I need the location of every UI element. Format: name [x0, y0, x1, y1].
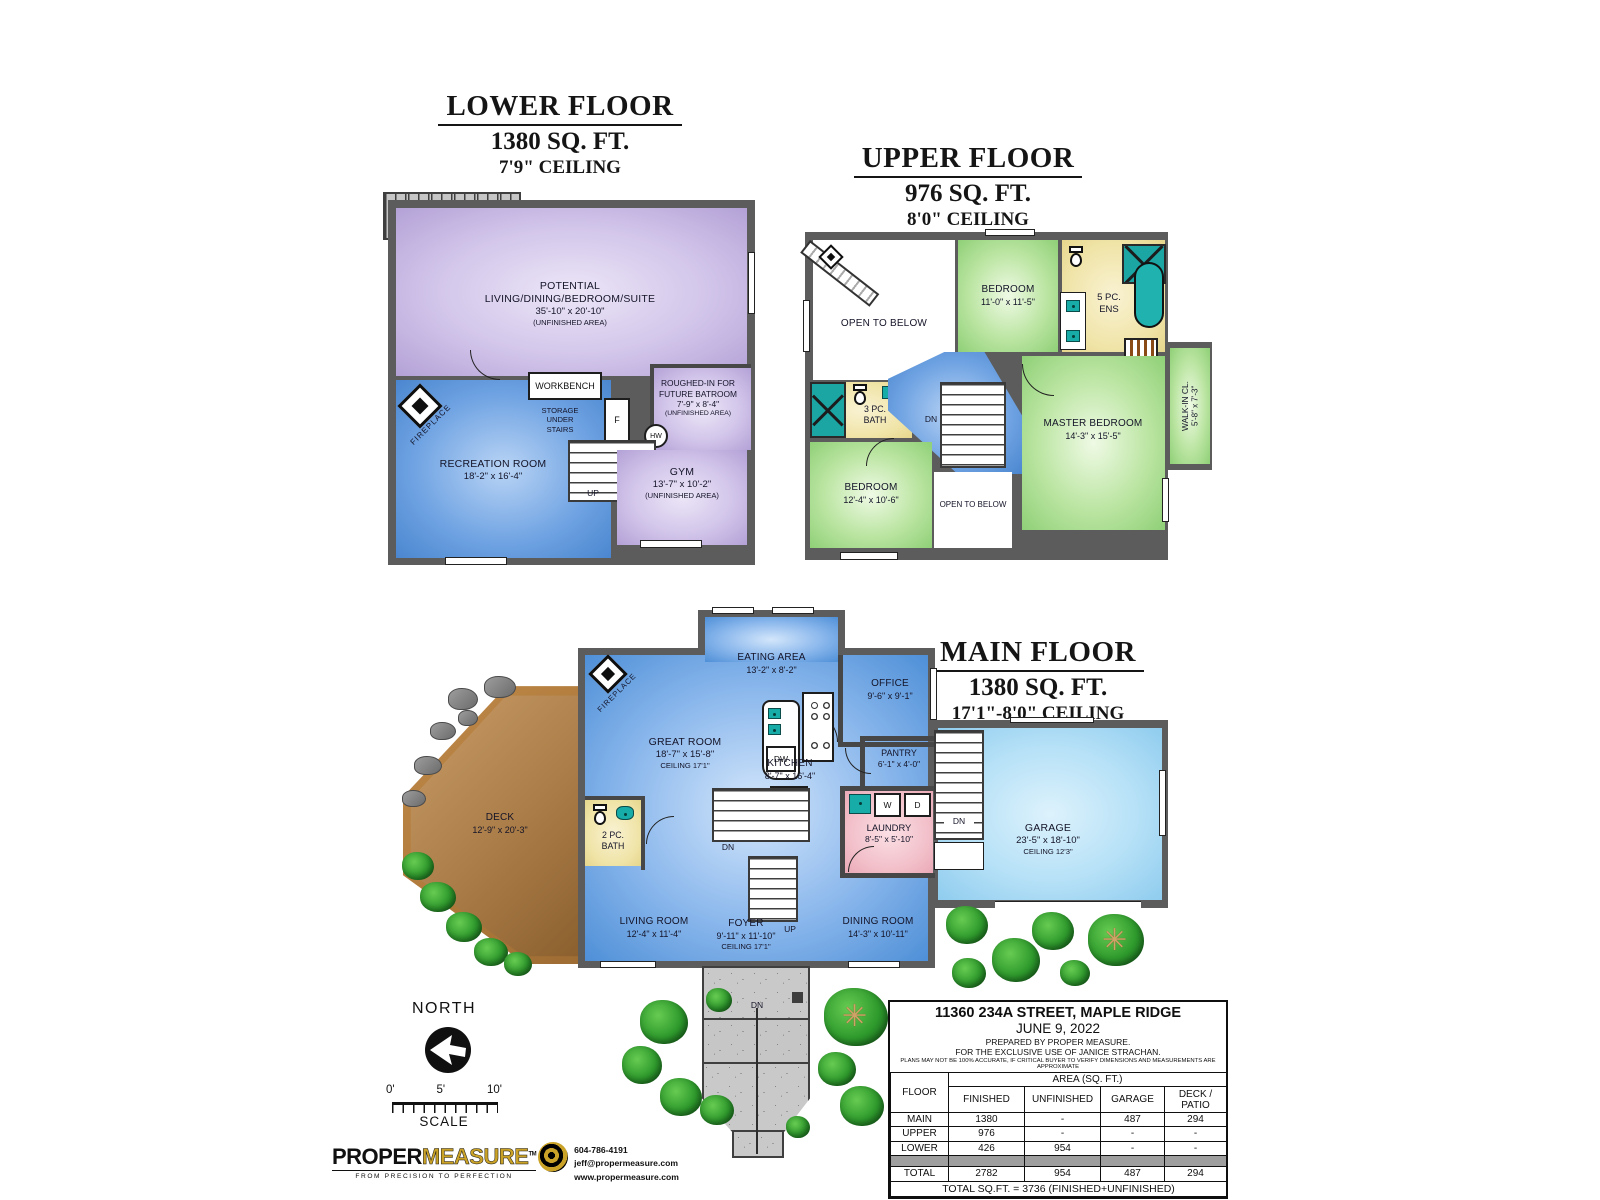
logo-website: www.propermeasure.com: [574, 1171, 679, 1184]
lower-floor-title-block: LOWER FLOOR 1380 SQ. FT. 7'9" CEILING: [420, 90, 700, 179]
plan-date: JUNE 9, 2022: [890, 1021, 1226, 1036]
lower-floor-ceiling: 7'9" CEILING: [420, 157, 700, 179]
deck-label: DECK 12'-9" x 20'-3": [440, 812, 560, 836]
tree: [640, 1000, 688, 1044]
window: [772, 607, 814, 614]
living-room-label: LIVING ROOM 12'-4" x 11'-4": [598, 916, 710, 940]
main-stairs-down: [712, 788, 810, 842]
washer: W: [874, 793, 901, 817]
window: [840, 552, 898, 560]
rock: [402, 790, 426, 807]
table-row-main: MAIN1380-487294: [891, 1112, 1227, 1126]
col-header-garage: GARAGE: [1101, 1087, 1165, 1112]
col-header-finished: FINISHED: [949, 1087, 1025, 1112]
exclusive-use: FOR THE EXCLUSIVE USE OF JANICE STRACHAN…: [890, 1047, 1226, 1057]
tree: [946, 906, 988, 944]
laundry-sink-icon: [849, 794, 871, 814]
main-stairs-dn-label: DN: [714, 842, 742, 853]
sink-icon: [616, 806, 634, 820]
workbench: WORKBENCH: [528, 372, 602, 400]
logo-measure: MEASURE: [422, 1144, 529, 1169]
scale-caption: SCALE: [388, 1114, 500, 1129]
window: [640, 540, 702, 548]
shrub: [446, 912, 482, 942]
window: [1159, 770, 1166, 836]
rock: [484, 676, 516, 698]
open-to-below-1-label: OPEN TO BELOW: [813, 318, 955, 331]
table-row-total: TOTAL2782954487294: [891, 1167, 1227, 1181]
window: [600, 961, 656, 968]
bathtub-icon: [1134, 262, 1164, 328]
rock: [458, 710, 478, 726]
scale-tick-labels: 0' 5' 10': [386, 1084, 502, 1096]
tree: [622, 1046, 662, 1084]
eating-area-label: EATING AREA 13'-2" x 8'-2": [705, 652, 838, 676]
main-stairs-up: [748, 856, 798, 922]
logo-wordmark: PROPERMEASURETM: [332, 1146, 536, 1168]
table-row-grand-total: TOTAL SQ.FT. = 3736 (FINISHED+UNFINISHED…: [891, 1181, 1227, 1196]
sink-icon: [768, 724, 781, 735]
tree: [1032, 912, 1074, 950]
wall-segment: [860, 736, 935, 741]
upper-floor-area: 976 SQ. FT.: [828, 180, 1108, 208]
shrub: [700, 1095, 734, 1125]
dryer: D: [904, 793, 931, 817]
entry-walkway-lower: [732, 1130, 784, 1158]
logo-tm: TM: [528, 1152, 536, 1158]
sink-icon: [768, 708, 781, 719]
logo-phone: 604-786-4191: [574, 1144, 679, 1157]
lower-floor-title: LOWER FLOOR: [438, 90, 681, 126]
disclaimer: PLANS MAY NOT BE 100% ACCURATE, IF CRITI…: [890, 1057, 1226, 1072]
logo-proper: PROPER: [332, 1144, 422, 1169]
shrub: [504, 952, 532, 976]
toilet-icon: [592, 804, 608, 828]
window: [803, 300, 810, 352]
bedroom-1-label: BEDROOM 11'-0" x 11'-5": [948, 284, 1068, 308]
main-floor-title: MAIN FLOOR: [932, 636, 1144, 672]
table-row-spacer: [891, 1155, 1227, 1166]
toilet-icon: [1068, 246, 1084, 270]
shrub: [706, 988, 732, 1012]
upper-stairs-dn-label: DN: [918, 414, 944, 425]
col-header-floor: FLOOR: [891, 1073, 949, 1113]
north-label: NORTH: [388, 1000, 500, 1018]
col-header-deck-patio: DECK / PATIO: [1165, 1087, 1227, 1112]
col-header-area-group: AREA (SQ. FT.): [949, 1073, 1227, 1087]
burner-icon: [811, 702, 818, 709]
window: [848, 961, 900, 968]
table-row-upper: UPPER976---: [891, 1127, 1227, 1141]
upper-floor-ceiling: 8'0" CEILING: [828, 209, 1108, 231]
walk-in-closet-label: WALK-IN CL. 5'-8" x 7'-3": [1172, 352, 1208, 460]
tree: [818, 1052, 856, 1086]
scale-ruler: [392, 1102, 498, 1113]
logo-email: jeff@propermeasure.com: [574, 1157, 679, 1170]
office-label: OFFICE 9'-6" x 9'-1": [845, 678, 935, 702]
sink-icon: [1066, 300, 1080, 312]
area-summary-table: 11360 234A STREET, MAPLE RIDGE JUNE 9, 2…: [888, 1000, 1228, 1199]
shrub: [420, 882, 456, 912]
shower-icon: [810, 382, 846, 438]
roughed-in-bath-label: ROUGHED-IN FOR FUTURE BATROOM 7'-9" x 8'…: [648, 378, 748, 418]
floorplan-canvas: LOWER FLOOR 1380 SQ. FT. 7'9" CEILING UP…: [0, 0, 1600, 1200]
freezer-icon: F: [604, 398, 630, 442]
bedroom-2-label: BEDROOM 12'-4" x 10'-6": [808, 482, 934, 506]
window: [445, 557, 507, 565]
shrub: [952, 958, 986, 988]
property-address: 11360 234A STREET, MAPLE RIDGE: [890, 1002, 1226, 1021]
garage-door-opening: [995, 901, 1141, 909]
logo-text-block: PROPERMEASURETM FROM PRECISION TO PERFEC…: [332, 1146, 536, 1180]
company-logo: PROPERMEASURETM FROM PRECISION TO PERFEC…: [332, 1146, 679, 1184]
scale-0: 0': [386, 1084, 395, 1096]
laundry-label: LAUNDRY 8'-5" x 5'-10": [843, 822, 935, 844]
tree: [660, 1078, 702, 1116]
shrub: [474, 938, 508, 966]
wall-segment: [641, 796, 645, 870]
prepared-by: PREPARED BY PROPER MEASURE.: [890, 1037, 1226, 1047]
kitchen-label: KITCHEN 8'-7" x 16'-4": [738, 758, 842, 782]
open-to-below-2-label: OPEN TO BELOW: [930, 500, 1016, 510]
upper-stairs-down: [940, 382, 1006, 468]
scale-10: 10': [487, 1084, 502, 1096]
area-table: FLOOR AREA (SQ. FT.) FINISHED UNFINISHED…: [890, 1072, 1227, 1197]
upper-floor-title-block: UPPER FLOOR 976 SQ. FT. 8'0" CEILING: [828, 142, 1108, 231]
recreation-room-label: RECREATION ROOM 18'-2" x 16'-4": [408, 458, 578, 483]
bath-2pc-label: 2 PC. BATH: [585, 830, 641, 852]
ensuite-label: 5 PC. ENS: [1086, 292, 1132, 316]
wall-segment: [840, 873, 935, 878]
window: [748, 252, 755, 314]
shrub: [402, 852, 434, 880]
col-header-unfinished: UNFINISHED: [1025, 1087, 1101, 1112]
storage-under-stairs-label: STORAGE UNDER STAIRS: [520, 406, 600, 434]
garage-label: GARAGE 23'-5" x 18'-10" CEILING 12'3": [968, 822, 1128, 856]
window: [930, 668, 937, 720]
room-open-to-below-2: [934, 472, 1012, 548]
potential-suite-label: POTENTIAL LIVING/DINING/BEDROOM/SUITE 35…: [430, 280, 710, 328]
main-floor-area: 1380 SQ. FT.: [898, 674, 1178, 702]
upper-floor-title: UPPER FLOOR: [854, 142, 1083, 178]
pantry-label: PANTRY 6'-1" x 4'-0": [864, 748, 934, 770]
lower-floor-area: 1380 SQ. FT.: [420, 128, 700, 156]
shrub: [786, 1116, 810, 1138]
foyer-label: FOYER 9'-11" x 11'-10" CEILING 17'1": [696, 918, 796, 951]
window: [985, 229, 1035, 236]
sink-icon: [1066, 330, 1080, 342]
rock: [448, 688, 478, 710]
logo-contact-block: 604-786-4191 jeff@propermeasure.com www.…: [574, 1144, 679, 1184]
tree: [992, 938, 1040, 982]
lower-stairs-up-label: UP: [578, 488, 608, 499]
window: [1010, 717, 1094, 723]
wall-segment: [838, 655, 843, 747]
tree-branches-icon: ✳: [1102, 926, 1127, 956]
table-row-lower: LOWER426954--: [891, 1141, 1227, 1155]
rock: [414, 756, 442, 775]
dining-room-label: DINING ROOM 14'-3" x 10'-11": [822, 916, 934, 940]
window: [712, 607, 754, 614]
tree-branches-icon: ✳: [842, 1002, 867, 1032]
gym-label: GYM 13'-7" x 10'-2" (UNFINISHED AREA): [617, 466, 747, 500]
wall-segment: [838, 742, 935, 747]
north-arrow-icon: [424, 1026, 472, 1074]
window: [1162, 478, 1169, 522]
logo-tagline: FROM PRECISION TO PERFECTION: [332, 1170, 536, 1180]
porch-post: [792, 992, 803, 1003]
rock: [430, 722, 456, 740]
master-bedroom-label: MASTER BEDROOM 14'-3" x 15'-5": [1018, 418, 1168, 442]
walkway-center-line: [756, 1008, 758, 1154]
range-counter: [802, 692, 834, 762]
main-floor-title-block: MAIN FLOOR 1380 SQ. FT. 17'1"-8'0" CEILI…: [898, 636, 1178, 725]
shrub: [1060, 960, 1090, 986]
bullseye-icon: [538, 1142, 568, 1172]
tree: [840, 1086, 884, 1126]
scale-5: 5': [437, 1084, 446, 1096]
